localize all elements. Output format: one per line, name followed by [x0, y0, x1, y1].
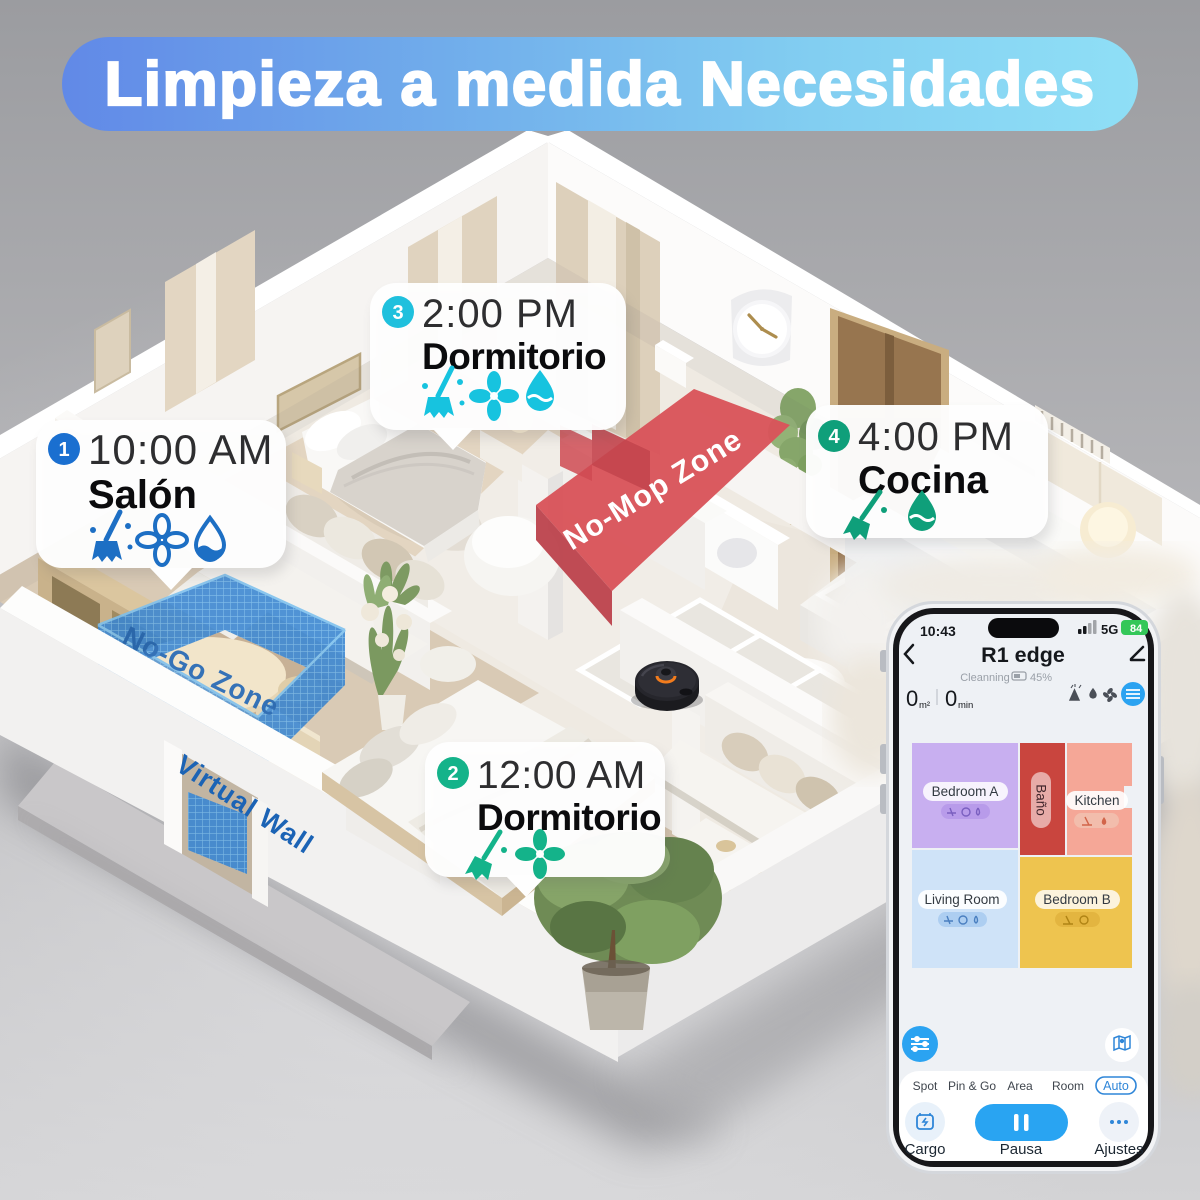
svg-text:2:00 PM: 2:00 PM [422, 292, 578, 336]
svg-text:84: 84 [1130, 623, 1143, 635]
svg-text:Ajustes: Ajustes [1094, 1141, 1143, 1158]
svg-text:5G: 5G [1101, 622, 1118, 637]
svg-text:Room: Room [1052, 1079, 1084, 1093]
svg-text:Pausa: Pausa [1000, 1141, 1043, 1158]
svg-text:2: 2 [447, 763, 458, 785]
svg-text:10:43: 10:43 [920, 623, 956, 639]
svg-text:R1 edge: R1 edge [981, 643, 1065, 667]
svg-text:Area: Area [1007, 1079, 1033, 1093]
svg-text:Cargo: Cargo [905, 1141, 946, 1158]
svg-text:12:00 AM: 12:00 AM [477, 754, 646, 797]
svg-text:Dormitorio: Dormitorio [477, 797, 661, 838]
svg-text:Cleanning: Cleanning [960, 672, 1010, 684]
svg-text:min: min [958, 700, 973, 711]
svg-text:Spot: Spot [913, 1079, 938, 1093]
svg-text:10:00 AM: 10:00 AM [88, 426, 273, 473]
svg-text:Bedroom A: Bedroom A [932, 784, 999, 799]
svg-text:4:00 PM: 4:00 PM [858, 415, 1014, 459]
svg-text:Auto: Auto [1103, 1079, 1129, 1093]
svg-text:Limpieza a medida Necesidades: Limpieza a medida Necesidades [104, 50, 1095, 119]
svg-text:Bedroom B: Bedroom B [1043, 892, 1111, 907]
svg-text:m²: m² [919, 700, 930, 711]
svg-text:Salón: Salón [88, 473, 197, 517]
svg-text:0: 0 [945, 686, 957, 711]
svg-text:Living Room: Living Room [924, 892, 999, 907]
svg-text:Baño: Baño [1034, 784, 1049, 816]
svg-text:0: 0 [906, 686, 918, 711]
svg-text:1: 1 [58, 439, 69, 461]
svg-text:4: 4 [828, 426, 840, 448]
svg-text:Pin & Go: Pin & Go [948, 1079, 996, 1093]
svg-text:45%: 45% [1030, 672, 1052, 684]
svg-text:3: 3 [392, 302, 403, 324]
svg-text:Kitchen: Kitchen [1074, 793, 1119, 808]
